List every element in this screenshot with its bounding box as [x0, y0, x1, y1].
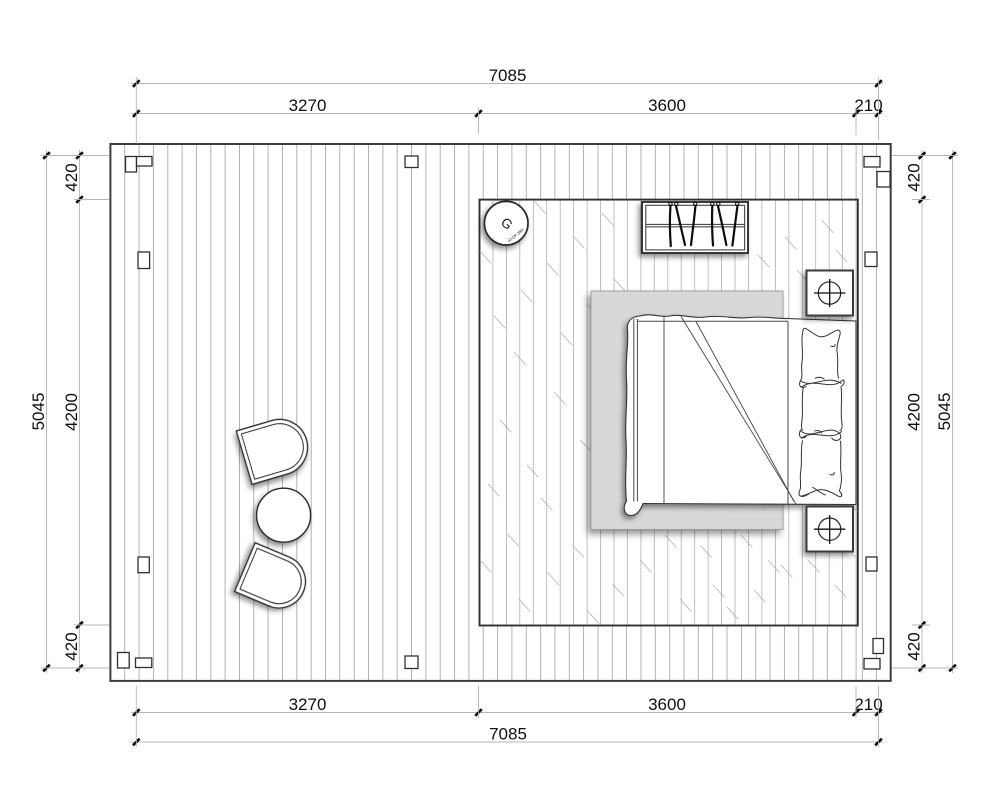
svg-text:4200: 4200 — [62, 393, 81, 431]
svg-text:5045: 5045 — [29, 393, 48, 431]
svg-text:420: 420 — [905, 163, 924, 191]
svg-text:3270: 3270 — [289, 695, 327, 714]
svg-text:3270: 3270 — [289, 96, 327, 115]
svg-text:3600: 3600 — [648, 695, 686, 714]
svg-text:4200: 4200 — [905, 393, 924, 431]
svg-text:420: 420 — [62, 163, 81, 191]
svg-text:420: 420 — [905, 632, 924, 660]
svg-text:7085: 7085 — [489, 725, 527, 744]
svg-text:5045: 5045 — [935, 393, 954, 431]
svg-text:3600: 3600 — [648, 96, 686, 115]
svg-text:7085: 7085 — [489, 66, 527, 85]
svg-text:420: 420 — [62, 632, 81, 660]
